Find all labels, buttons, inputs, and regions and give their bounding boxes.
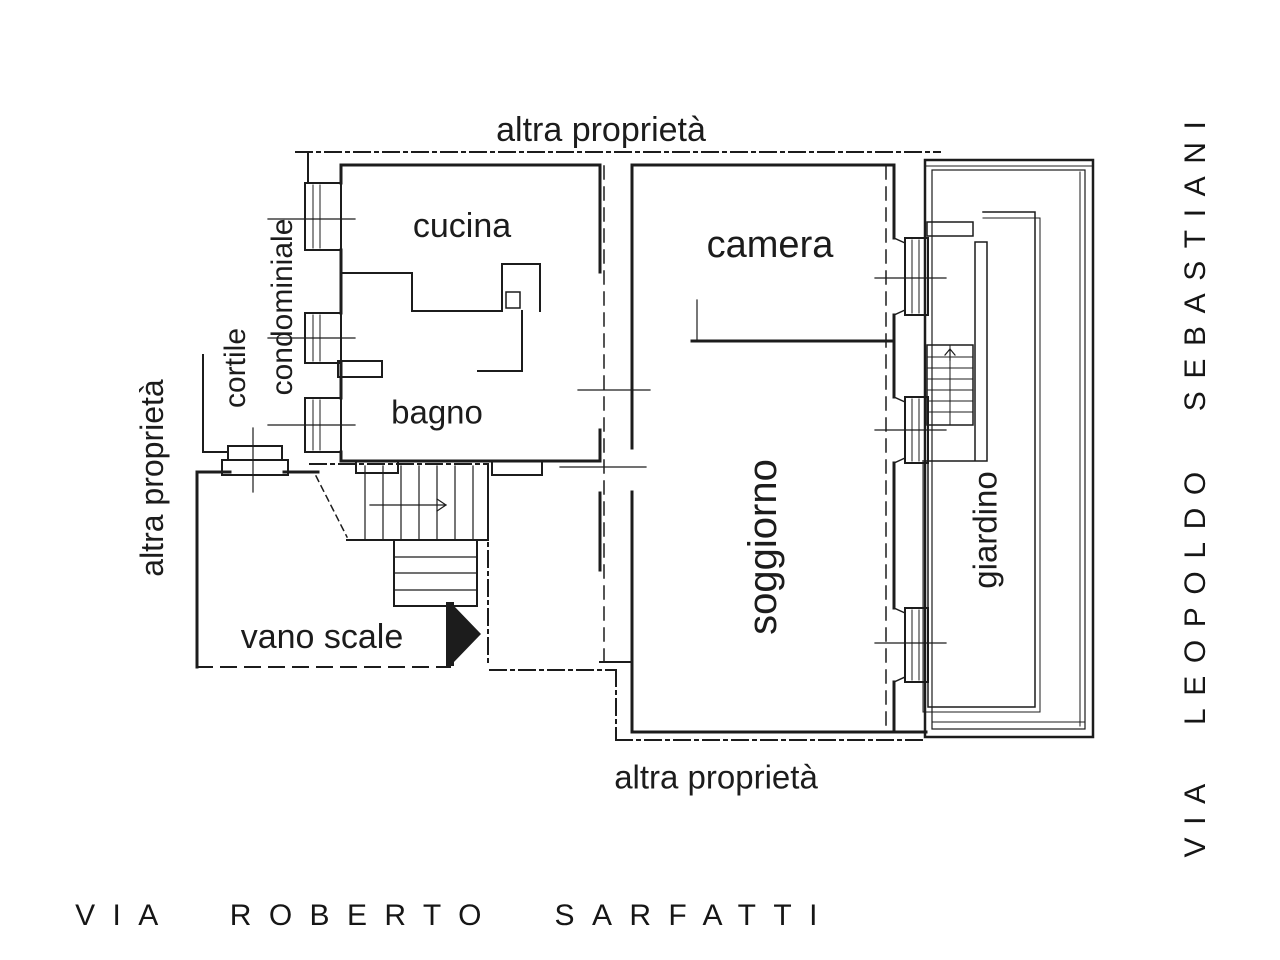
courtyard-label-line1: cortile (221, 328, 251, 408)
boundary-label-top: altra proprietà (496, 113, 706, 147)
staircase (347, 466, 488, 606)
stair-cut-line (316, 476, 347, 537)
street-label-via-roberto-sarfatti: VIA ROBERTO SARFATTI (75, 901, 835, 931)
street-label-via-leopoldo-sebastiani: VIA LEOPOLDO SEBASTIANI (1181, 109, 1211, 858)
room-label-bagno: bagno (391, 396, 483, 429)
garden-walls (923, 160, 1093, 737)
room-label-soggiorno: soggiorno (743, 459, 783, 635)
garden-steps (927, 345, 973, 425)
room-label-camera: camera (707, 226, 834, 264)
entrance-arrow-icon (446, 602, 481, 666)
room-label-cucina: cucina (413, 209, 511, 243)
room-label-vano-scale: vano scale (241, 620, 404, 654)
room-label-giardino: giardino (969, 471, 1002, 588)
interior-fixtures (203, 264, 542, 475)
boundary-label-left: altra proprietà (136, 379, 168, 576)
floor-plan-page: altra proprietà cucina camera bagno vano… (0, 0, 1280, 960)
boundary-label-bottom: altra proprietà (614, 761, 818, 794)
courtyard-label-line2: condominiale (268, 219, 298, 396)
